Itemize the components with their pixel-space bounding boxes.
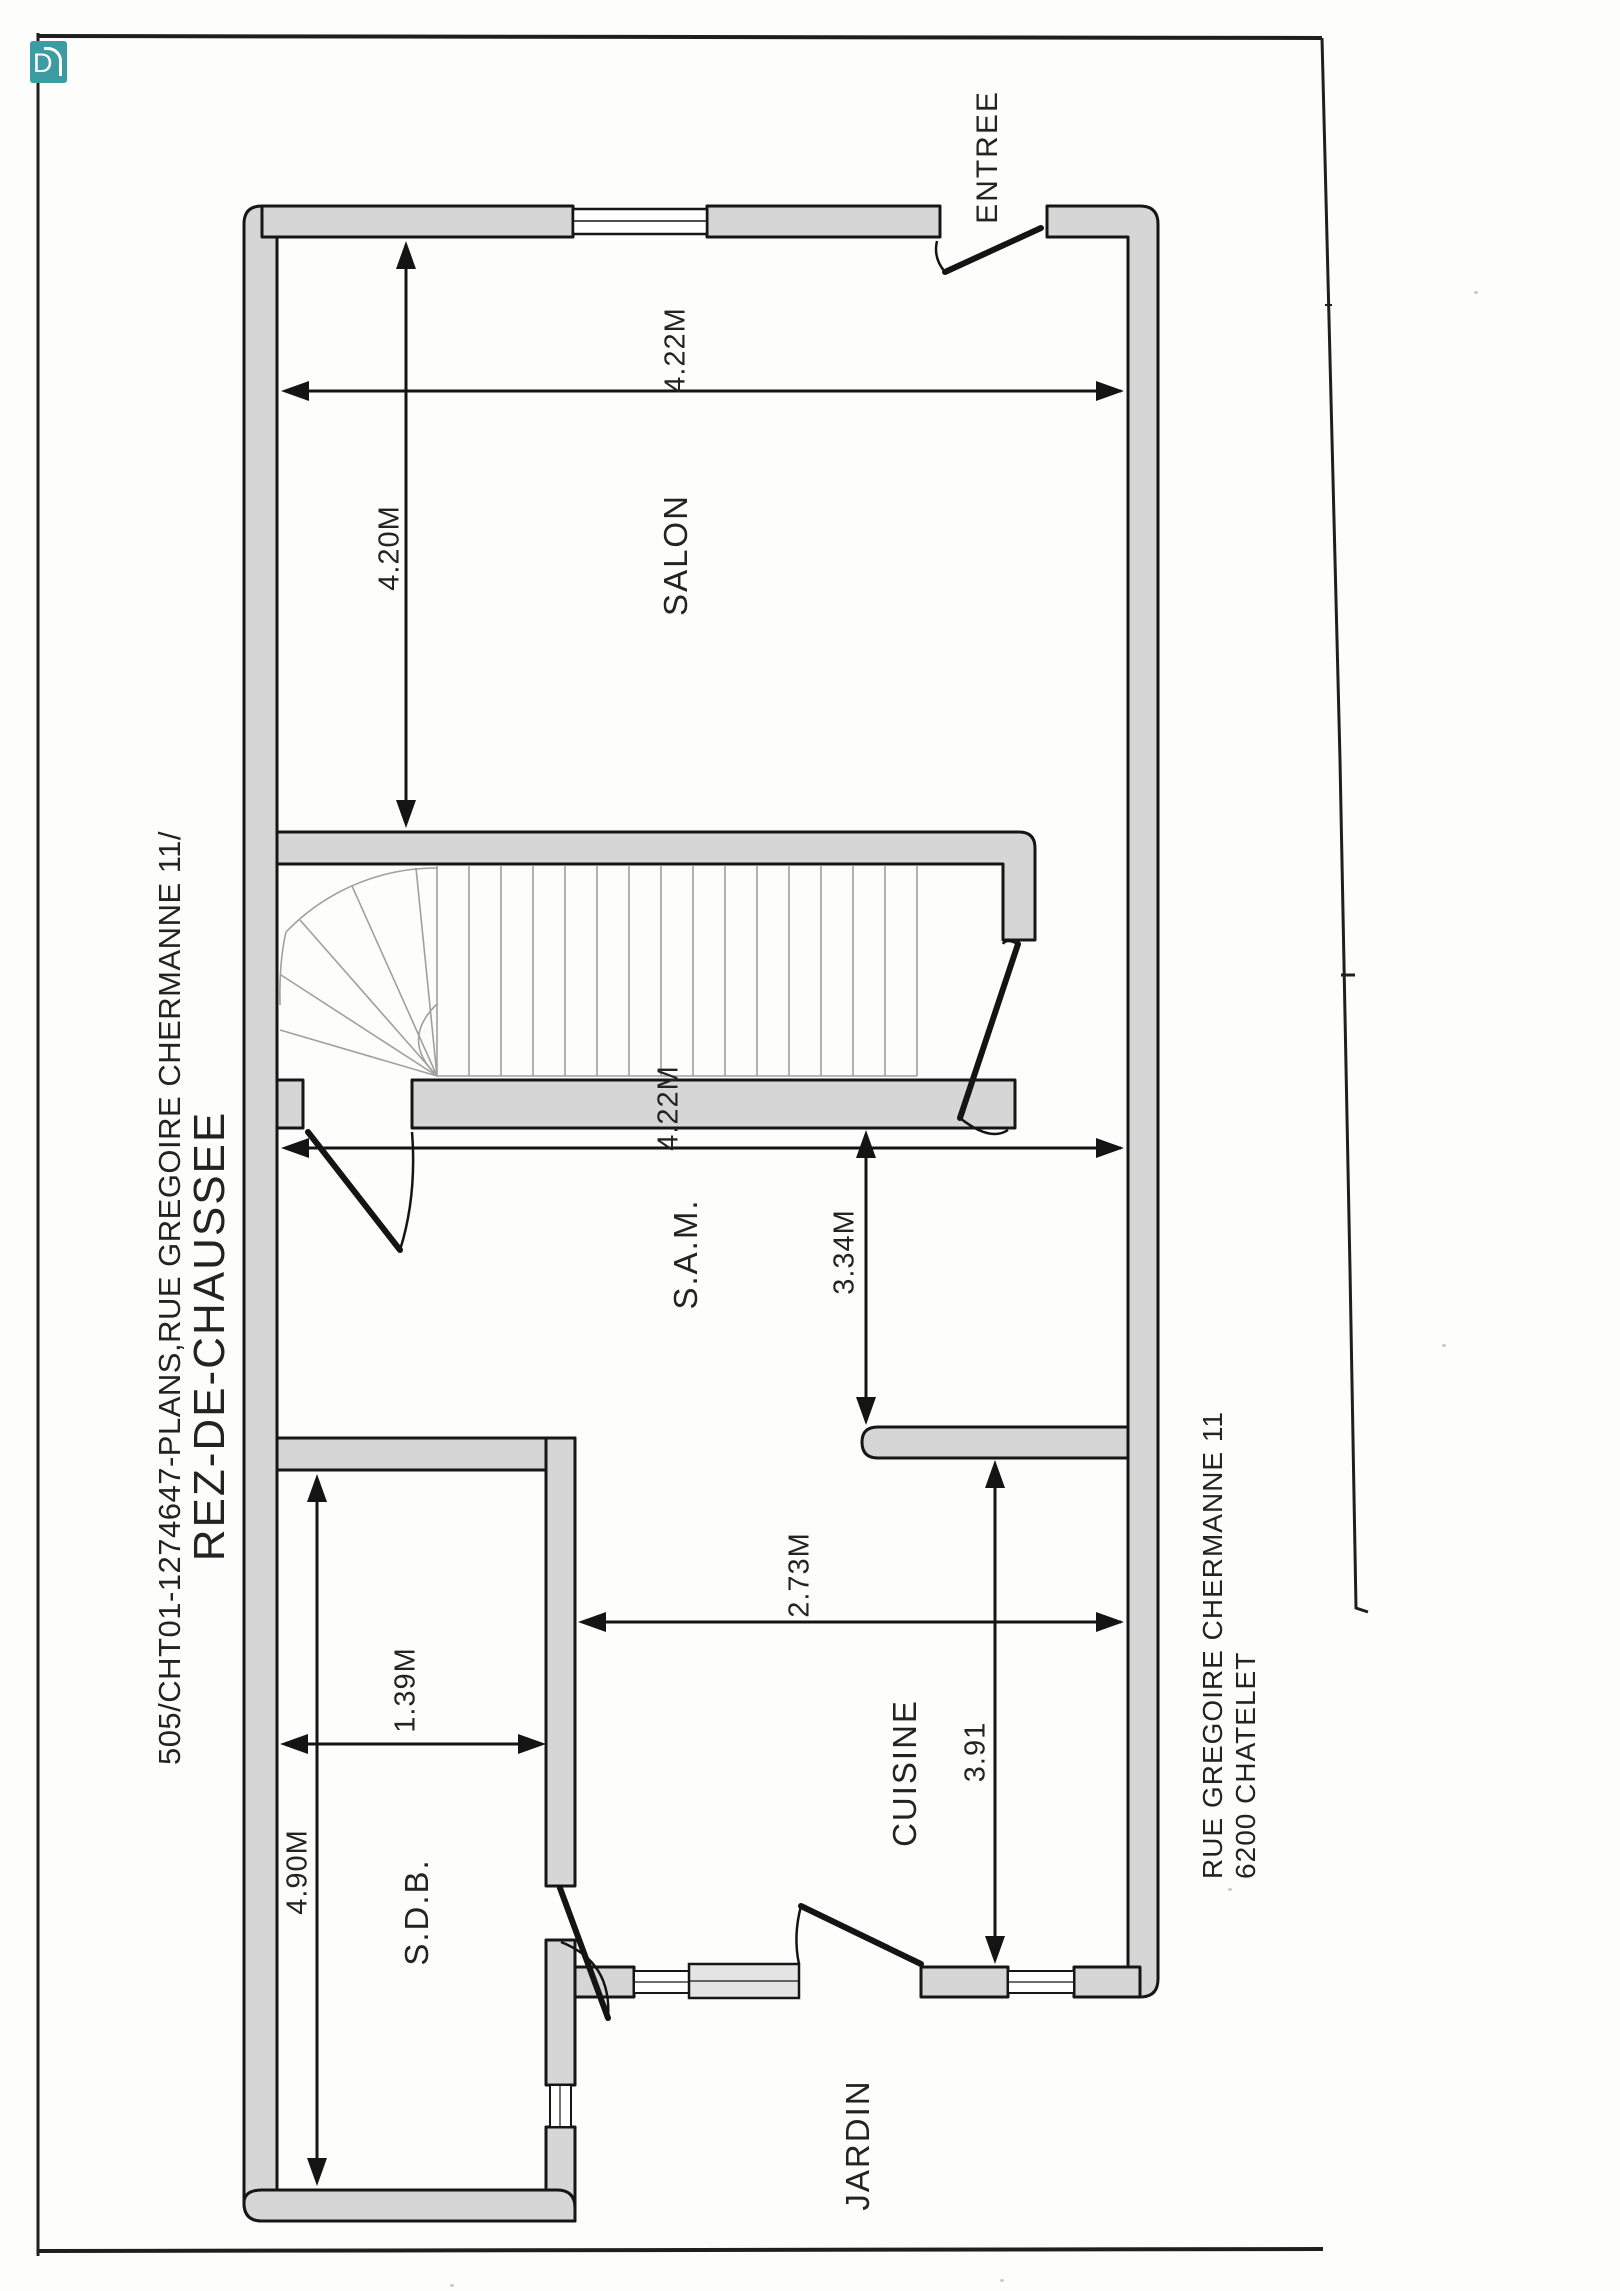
agency-logo-arc-icon [44,47,62,76]
scan-speck [1442,1344,1446,1347]
window-salon [573,209,707,234]
wall-right [1047,206,1158,1997]
dimension-sdb-width [280,1734,546,1754]
dim-label-sam-depth: 3.34M [829,1209,862,1295]
page-frame [37,33,1368,2256]
sheet-reference: 505/CHT01-1274647-PLANS,RUE GREGOIRE CHE… [152,831,188,1765]
dimension-sam-width [281,1138,1124,1158]
address-line-2: 6200 CHATELET [1229,1411,1262,1879]
window-cuisine-left [634,1971,689,1993]
door-sam [308,1132,413,1250]
dim-label-sam-width: 4.22M [653,1065,686,1151]
wall-top-2 [707,206,940,237]
room-label-entree: ENTREE [971,90,1005,224]
address-line-1: RUE GREGOIRE CHERMANNE 11 [1196,1411,1229,1879]
window-cuisine-block [689,1964,799,1998]
dim-label-salon-width: 4.22M [660,307,693,393]
stair-winder [280,868,437,1076]
scan-speck [1228,1888,1232,1891]
wall-left [244,206,277,2221]
floorplan-sheet: D 505/CHT01-1274647-PLANS,RUE GREGOIRE C… [0,0,1620,2291]
wall-cuisine-bottom-a [921,1967,1008,1997]
wall-stair-bottom [412,1080,1015,1128]
dimension-cuisine-width [578,1612,1124,1632]
wall-stair-bottom-stub [277,1080,303,1128]
door-jardin [796,1906,921,1964]
wall-sdb-top [277,1438,575,1470]
floorplan-drawing [0,0,1620,2291]
dim-label-cuisine-width: 2.73M [784,1532,817,1618]
staircase [280,866,917,1076]
scan-speck [450,2284,454,2287]
room-label-cuisine: CUISINE [886,1699,924,1847]
room-label-jardin: JARDIN [839,2079,877,2210]
wall-sam-cuisine [862,1427,1128,1458]
wall-stair-top [277,832,1035,940]
address-block: RUE GREGOIRE CHERMANNE 11 6200 CHATELET [1196,1411,1262,1879]
agency-logo: D [30,41,67,83]
window-cuisine-right [1008,1971,1074,1993]
wall-sdb-bottom [244,2190,575,2221]
room-label-salon: SALON [657,494,695,616]
window-sdb [550,2085,571,2127]
scan-speck [1000,2279,1004,2282]
scan-speck [1474,291,1478,294]
wall-sdb-cuisine-b [546,1940,575,2085]
room-label-sam: S.A.M. [667,1198,705,1309]
wall-sdb-cuisine-a [546,1438,575,1886]
dim-label-cuisine-depth: 3.91 [960,1722,993,1782]
dimension-cuisine-depth [985,1460,1005,1964]
door-entree [936,228,1041,272]
wall-cuisine-bottom-b [1074,1967,1140,1997]
dim-label-salon-depth: 4.20M [374,505,407,591]
dim-label-sdb-width: 1.39M [390,1647,423,1733]
room-label-sdb: S.D.B. [398,1858,436,1965]
dim-label-sdb-depth: 4.90M [282,1829,315,1915]
floor-title: REZ-DE-CHAUSSEE [185,1111,235,1562]
wall-top-1 [262,206,573,237]
